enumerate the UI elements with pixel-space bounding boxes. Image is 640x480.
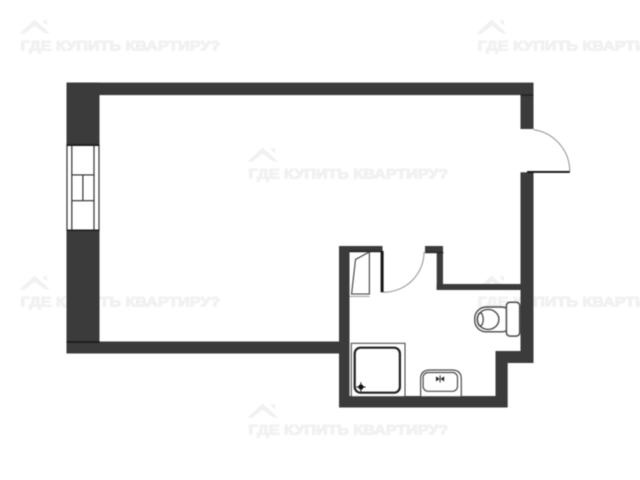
svg-text:ГДЕ КУПИТЬ КВАРТИРУ?: ГДЕ КУПИТЬ КВАРТИРУ? — [478, 37, 640, 53]
svg-text:ГДЕ КУПИТЬ КВАРТИРУ?: ГДЕ КУПИТЬ КВАРТИРУ? — [21, 293, 221, 309]
svg-text:ГДЕ КУПИТЬ КВАРТИРУ?: ГДЕ КУПИТЬ КВАРТИРУ? — [21, 37, 221, 53]
svg-text:ГДЕ КУПИТЬ КВАРТИРУ?: ГДЕ КУПИТЬ КВАРТИРУ? — [249, 165, 449, 181]
svg-text:ГДЕ КУПИТЬ КВАРТИРУ?: ГДЕ КУПИТЬ КВАРТИРУ? — [249, 421, 449, 437]
